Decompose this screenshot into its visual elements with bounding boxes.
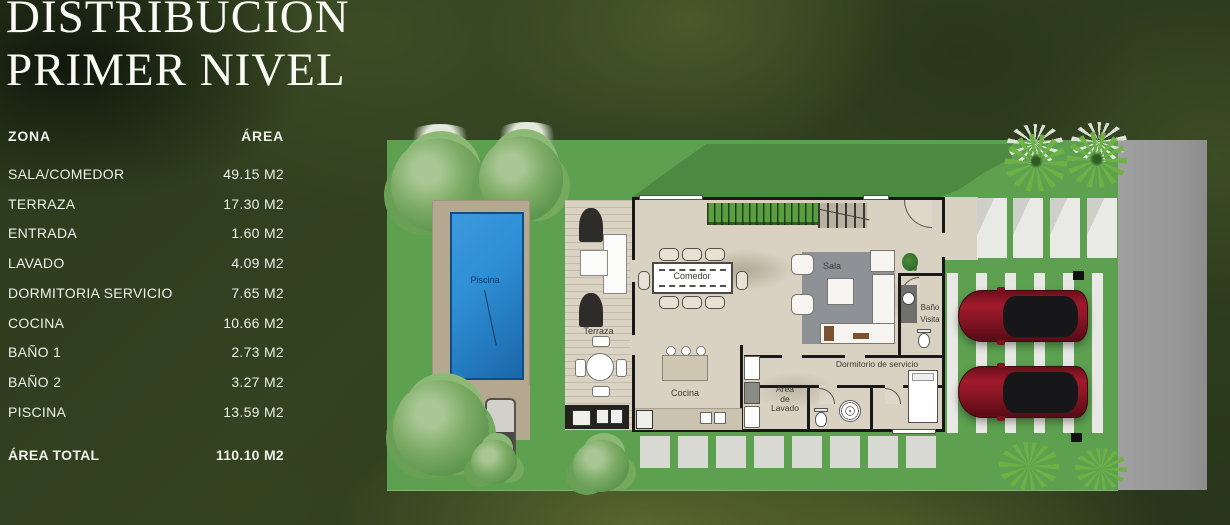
area-cell: 13.59 M2 [223, 404, 284, 420]
wall [898, 273, 945, 276]
dining-chair [682, 296, 702, 309]
table-row: PISCINA13.59 M2 [8, 404, 284, 422]
table-total-row: ÁREA TOTAL 110.10 M2 [8, 447, 284, 465]
door-opening [630, 335, 635, 355]
area-header: ÁREA [241, 128, 284, 144]
table-row: BAÑO 23.27 M2 [8, 374, 284, 392]
zone-cell: BAÑO 1 [8, 344, 61, 360]
table-row: SALA/COMEDOR49.15 M2 [8, 166, 284, 184]
car-roof [1003, 296, 1079, 337]
outdoor-sink [596, 409, 609, 424]
patio-table [586, 353, 614, 381]
car-mirror [997, 287, 1005, 292]
car-roof [1003, 372, 1079, 413]
car-mirror [997, 340, 1005, 345]
sofa-cushion [853, 333, 869, 339]
paver-slab [1013, 198, 1043, 258]
table-row: TERRAZA17.30 M2 [8, 196, 284, 214]
door-opening [782, 355, 802, 358]
door-opening [630, 260, 635, 282]
table-row: DORMITORIA SERVICIO7.65 M2 [8, 285, 284, 303]
kitchen-sink [700, 412, 712, 424]
zone-cell: BAÑO 2 [8, 374, 61, 390]
staircase [818, 203, 867, 228]
page-title-line2: PRIMER NIVEL [6, 44, 386, 97]
area-cell: 10.66 M2 [223, 315, 284, 331]
area-cell: 1.60 M2 [231, 225, 284, 241]
bed-pillow [912, 373, 934, 381]
stove [636, 410, 653, 429]
paver-slab [977, 198, 1007, 258]
patio-chair [592, 386, 610, 397]
zone-cell: PISCINA [8, 404, 66, 420]
indoor-plant [902, 253, 918, 271]
zone-cell: SALA/COMEDOR [8, 166, 124, 182]
grill [572, 410, 591, 426]
guest-bath-sink [902, 292, 915, 305]
paver-slab [1087, 198, 1117, 258]
window [863, 195, 889, 200]
palm-trunk [1090, 152, 1104, 166]
service-bedroom-label: Dormitorio de servicio [827, 359, 927, 369]
driveway-light [1073, 271, 1084, 280]
total-zone-cell: ÁREA TOTAL [8, 447, 99, 463]
paver-slab [1050, 198, 1080, 258]
terrace-chair [579, 293, 603, 327]
table-dash-line [659, 285, 726, 287]
patio-chair [575, 359, 586, 377]
window [892, 429, 936, 434]
area-cell: 17.30 M2 [223, 196, 284, 212]
guest-bath-label: Baño [916, 303, 944, 312]
zone-cell: COCINA [8, 315, 64, 331]
palm-shrub [999, 442, 1059, 490]
table-row: COCINA10.66 M2 [8, 315, 284, 333]
page-title-line1: DISTRIBUCION [6, 0, 386, 44]
coffee-table [827, 278, 854, 305]
kitchen-island [662, 355, 708, 381]
kitchen-label: Cocina [657, 388, 713, 398]
patio-chair [592, 336, 610, 347]
table-row: LAVADO4.09 M2 [8, 255, 284, 273]
door-opening [845, 355, 865, 358]
area-cell: 7.65 M2 [231, 285, 284, 301]
toilet [815, 412, 827, 427]
laundry-label: Area de Lavado [765, 385, 805, 414]
area-cell: 49.15 M2 [223, 166, 284, 182]
table-row: ENTRADA1.60 M2 [8, 225, 284, 243]
dining-label: Comedor [642, 271, 742, 281]
armchair [791, 294, 814, 315]
living-label: Sala [812, 261, 852, 271]
wall [807, 388, 810, 432]
terrace-label: Terraza [565, 326, 632, 336]
palm-shrub [1075, 448, 1127, 490]
walkway-pavers [640, 436, 942, 468]
pool-label: Piscina [450, 275, 520, 285]
car-mirror [997, 416, 1005, 421]
wall [870, 388, 873, 432]
terrace-chair [579, 208, 603, 242]
page-title: DISTRIBUCION PRIMER NIVEL [6, 0, 386, 97]
shower [839, 400, 861, 422]
driveway-light [1071, 433, 1082, 442]
tree [471, 440, 517, 484]
entry-path [945, 197, 978, 260]
laundry-label-line: Lavado [765, 404, 805, 414]
street-sidewalk [1118, 140, 1207, 490]
palm-trunk [1029, 154, 1043, 168]
zone-cell: DORMITORIA SERVICIO [8, 285, 173, 301]
fridge [744, 356, 760, 380]
zone-cell: TERRAZA [8, 196, 75, 212]
zone-cell: LAVADO [8, 255, 65, 271]
tree [573, 440, 629, 492]
car [958, 290, 1088, 342]
area-cell: 3.27 M2 [231, 374, 284, 390]
pool [450, 212, 524, 380]
dining-chair [659, 248, 679, 261]
dining-chair [705, 296, 725, 309]
outdoor-sink [610, 409, 623, 424]
window [639, 195, 703, 200]
sofa-cushion [824, 326, 834, 341]
car [958, 366, 1088, 418]
guest-bath-label: Visita [916, 315, 944, 324]
service-bed [908, 370, 938, 423]
utility-closet [744, 382, 760, 404]
dining-chair [659, 296, 679, 309]
table-header-row: ZONA ÁREA [8, 128, 284, 146]
kitchen-sink [714, 412, 726, 424]
armchair [791, 254, 814, 275]
washer [744, 406, 760, 428]
dining-chair [705, 248, 725, 261]
patio-chair [616, 359, 627, 377]
sofa-corner [870, 250, 895, 272]
total-area-cell: 110.10 M2 [216, 447, 284, 463]
car-mirror [997, 363, 1005, 368]
area-cell: 2.73 M2 [231, 344, 284, 360]
toilet [918, 333, 930, 348]
zone-header: ZONA [8, 128, 51, 144]
dining-chair [682, 248, 702, 261]
table-row: BAÑO 12.73 M2 [8, 344, 284, 362]
floor-plan: Piscina Terraza Comedor [387, 140, 1207, 490]
terrace-side-table [580, 250, 608, 276]
area-cell: 4.09 M2 [231, 255, 284, 271]
interior-hedge [707, 203, 818, 225]
zone-cell: ENTRADA [8, 225, 77, 241]
